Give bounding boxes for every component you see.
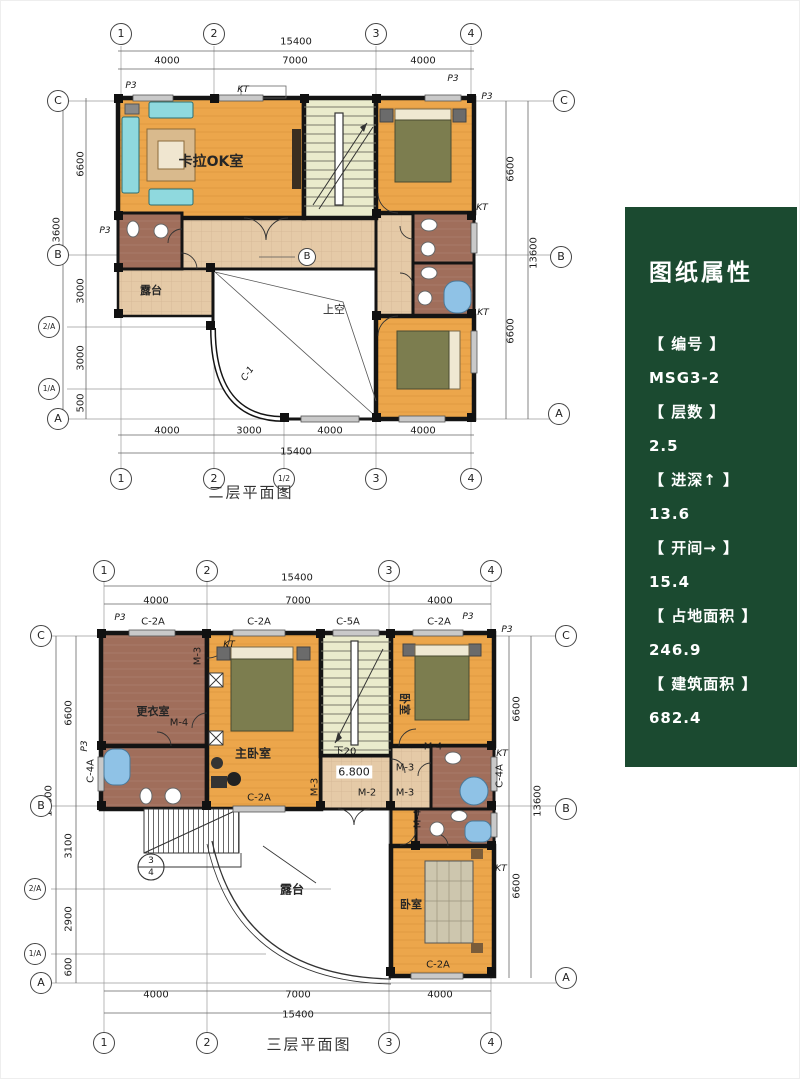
- dim-label: 2900: [64, 906, 75, 931]
- dim-label: 15400: [280, 447, 312, 458]
- grid-bubble: 1: [93, 560, 115, 582]
- terrace-parapet-curve: [212, 841, 391, 979]
- dim-label: 3000: [76, 278, 87, 303]
- dim-label: 6600: [506, 318, 517, 343]
- dim-label: 4000: [410, 56, 435, 67]
- grid-bubble: 2: [196, 1032, 218, 1054]
- grid-bubble: B: [30, 795, 52, 817]
- detail-bubble-bottom: 4: [148, 868, 154, 878]
- field-value-width: 15.4: [649, 565, 787, 599]
- grid-bubble: 3: [378, 560, 400, 582]
- ac-code-kt: KT: [237, 85, 248, 95]
- ac-code-kt: KT: [496, 749, 507, 759]
- door-code-label: M-3: [396, 788, 415, 799]
- wall-code-p3: P3: [99, 226, 110, 236]
- caption-2f: 二层平面图: [208, 482, 293, 503]
- grid-bubble: 1/A: [38, 378, 60, 400]
- grid-bubble-mid: B: [298, 248, 316, 266]
- bathtub: [444, 281, 471, 313]
- dim-label: 4000: [427, 596, 452, 607]
- grid-bubble: C: [30, 625, 52, 647]
- terrace-2f: [118, 269, 213, 316]
- panel-title: 图纸属性: [649, 253, 787, 287]
- window-code-label: C-2A: [247, 793, 271, 804]
- dim-label: 4000: [410, 426, 435, 437]
- dim-label: 4000: [143, 596, 168, 607]
- grid-bubble: B: [550, 246, 572, 268]
- field-label-building-area: 【 建筑面积 】: [649, 667, 787, 701]
- grid-bubble: 1: [110, 468, 132, 490]
- ac-code-kt: KT: [476, 203, 487, 213]
- detail-bubble-top: 3: [148, 856, 154, 866]
- dim-label: 6600: [506, 156, 517, 181]
- grid-bubble: 3: [365, 468, 387, 490]
- void-open-area: [213, 269, 376, 419]
- caption-3f: 三层平面图: [266, 1034, 351, 1055]
- dim-label: 4000: [154, 56, 179, 67]
- drawing-properties-panel: 图纸属性 【 编号 】 MSG3-2 【 层数 】 2.5 【 进深↑ 】 13…: [625, 207, 797, 767]
- grid-bubble: 4: [460, 468, 482, 490]
- dim-label: 7000: [285, 596, 310, 607]
- window-code-label: C-5A: [336, 617, 360, 628]
- tv-cabinet: [292, 129, 301, 189]
- grid-bubble: 1: [110, 23, 132, 45]
- stair-rail: [335, 113, 343, 205]
- field-value-depth: 13.6: [649, 497, 787, 531]
- field-value-code: MSG3-2: [649, 361, 787, 395]
- window-code-label: C-4A: [86, 759, 97, 783]
- dim-label: 4000: [143, 990, 168, 1001]
- dim-label: 6600: [64, 700, 75, 725]
- grid-bubble: B: [555, 798, 577, 820]
- room-label-bedroom-top: 卧室: [397, 693, 413, 715]
- dim-label: 6600: [512, 873, 523, 898]
- bathtub: [104, 749, 130, 785]
- field-value-floors: 2.5: [649, 429, 787, 463]
- field-label-footprint-area: 【 占地面积 】: [649, 599, 787, 633]
- grid-bubble: 3: [378, 1032, 400, 1054]
- grid-bubble: 4: [480, 1032, 502, 1054]
- grid-bubble: 2/A: [38, 316, 60, 338]
- grid-bubble: A: [555, 967, 577, 989]
- dim-label: 3000: [236, 426, 261, 437]
- dim-label: 15400: [280, 37, 312, 48]
- wall-code-p3: P3: [80, 740, 90, 751]
- dressing-room: [101, 633, 207, 746]
- bed-3f-top: [403, 644, 481, 720]
- wall-code-p3: P3: [447, 74, 458, 84]
- dim-label: 4000: [317, 426, 342, 437]
- wall-code-p3: P3: [501, 625, 512, 635]
- dim-label: 6600: [76, 151, 87, 176]
- ac-code-kt: KT: [477, 308, 488, 318]
- stair-note-label: 下20: [334, 743, 357, 758]
- bathroom-2f-left: [118, 213, 182, 269]
- grid-bubble: C: [553, 90, 575, 112]
- room-label-karaoke: 卡拉OK室: [179, 151, 244, 171]
- grid-bubble: C: [47, 90, 69, 112]
- window-code-label: C-4A: [495, 764, 506, 788]
- dim-label: 15400: [282, 1010, 314, 1021]
- door-code-label: M-4: [424, 742, 443, 753]
- door-code-label: M-3: [310, 778, 321, 797]
- grid-bubble: A: [548, 403, 570, 425]
- grid-bubble: A: [47, 408, 69, 430]
- bed-2f-bottom: [397, 331, 460, 389]
- room-label-master: 主卧室: [235, 745, 271, 762]
- room-label-bedroom-bottom: 卧室: [400, 896, 422, 912]
- window-code-label: C-2A: [426, 960, 450, 971]
- grid-bubble: B: [47, 244, 69, 266]
- wall-code-p3: P3: [114, 613, 125, 623]
- grid-bubble: 4: [460, 23, 482, 45]
- bathroom-2f-right-1: [413, 213, 474, 263]
- grid-bubble: 1: [93, 1032, 115, 1054]
- wall-code-p3: P3: [125, 81, 136, 91]
- door-code-label: M-4: [170, 718, 189, 729]
- dim-label: 500: [76, 393, 87, 412]
- dim-label: 600: [64, 957, 75, 976]
- field-label-width: 【 开间→ 】: [649, 531, 787, 565]
- door-code-label: M-3: [193, 647, 204, 666]
- field-label-code: 【 编号 】: [649, 327, 787, 361]
- dim-label: 4000: [427, 990, 452, 1001]
- architectural-drawing-page: 卡拉OK室 露台 上空 P3 P3 P3 P3 KT KT KT C-1 154…: [0, 0, 800, 1079]
- dim-label: 3100: [64, 833, 75, 858]
- dim-label: 13600: [529, 237, 540, 269]
- door-code-label: M-3: [396, 763, 415, 774]
- dim-label: 6600: [512, 696, 523, 721]
- window-code-label: C-2A: [141, 617, 165, 628]
- room-label-terrace-2f: 露台: [140, 282, 162, 298]
- dim-label: 7000: [285, 990, 310, 1001]
- window-code-label: C-2A: [427, 617, 451, 628]
- field-value-building-area: 682.4: [649, 701, 787, 735]
- room-label-terrace-3f: 露台: [280, 881, 304, 898]
- hall-3f: [321, 756, 391, 809]
- grid-bubble: 2/A: [24, 878, 46, 900]
- stair-rail: [351, 641, 358, 745]
- door-code-label: M-4: [413, 810, 424, 829]
- void-label: 上空: [323, 301, 345, 317]
- dim-label: 7000: [282, 56, 307, 67]
- field-label-floors: 【 层数 】: [649, 395, 787, 429]
- grid-bubble: 3: [365, 23, 387, 45]
- grid-bubble: C: [555, 625, 577, 647]
- dim-label: 13600: [533, 785, 544, 817]
- dim-label: 15400: [281, 573, 313, 584]
- window-code-label: C-2A: [247, 617, 271, 628]
- grid-bubble: A: [30, 972, 52, 994]
- field-label-depth: 【 进深↑ 】: [649, 463, 787, 497]
- dim-label: 3000: [76, 345, 87, 370]
- ac-code-kt: KT: [223, 640, 234, 650]
- elevation-label: 6.800: [336, 766, 372, 779]
- grid-bubble: 2: [203, 23, 225, 45]
- wall-code-p3: P3: [462, 612, 473, 622]
- dim-label: 4000: [154, 426, 179, 437]
- door-code-label: M-2: [358, 788, 377, 799]
- grid-bubble: 2: [196, 560, 218, 582]
- room-label-dressing: 更衣室: [137, 703, 170, 719]
- ac-code-kt: KT: [495, 864, 506, 874]
- field-value-footprint-area: 246.9: [649, 633, 787, 667]
- wall-code-p3: P3: [481, 92, 492, 102]
- grid-bubble: 4: [480, 560, 502, 582]
- grid-bubble: 1/A: [24, 943, 46, 965]
